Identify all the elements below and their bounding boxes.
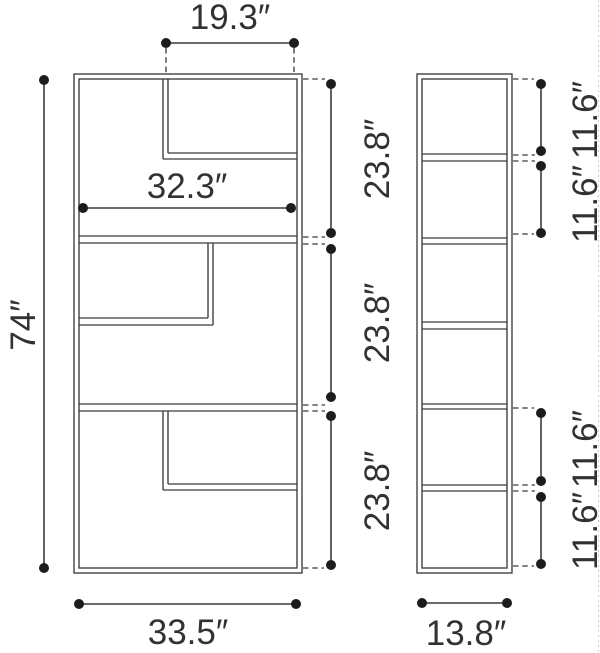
side-outer-edge: [417, 74, 512, 573]
dim-inner-shelf-width: 32.3″: [78, 167, 296, 213]
extension-dashes: [303, 79, 325, 568]
dim-endpoint-dot: [536, 492, 546, 502]
dim-endpoint-dot: [74, 599, 84, 609]
side-view: [417, 74, 512, 573]
dim-endpoint-dot: [39, 563, 49, 573]
dim-endpoint-dot: [326, 411, 336, 421]
dim-endpoint-dot: [289, 38, 299, 48]
dim-label-compartment-1: 11.6″: [566, 81, 600, 159]
dim-endpoint-dot: [326, 79, 336, 89]
dim-endpoint-dot: [536, 146, 546, 156]
front-view: [74, 74, 302, 573]
dim-endpoint-dot: [536, 408, 546, 418]
front-top-compartment-divider: [163, 79, 297, 159]
dim-endpoint-dot: [536, 228, 546, 238]
dim-label-inner-shelf-width: 32.3″: [147, 167, 228, 206]
dim-depth: 13.8″: [417, 598, 512, 653]
dim-label-compartment-6: 11.6″: [566, 492, 600, 570]
extension-dashes: [166, 48, 294, 73]
dim-endpoint-dot: [78, 203, 88, 213]
dim-endpoint-dot: [326, 560, 336, 570]
dim-endpoint-dot: [417, 598, 427, 608]
front-bottom-compartment-divider: [163, 411, 297, 490]
extension-dashes: [513, 79, 535, 566]
dim-label-depth: 13.8″: [426, 614, 507, 653]
side-inner-edge: [422, 79, 507, 568]
dimension-drawing: 19.3″ 32.3″ 74″ 23.8″ 23.8″ 23.8″ 33.5″: [0, 0, 600, 653]
dim-label-top-opening-width: 19.3″: [190, 0, 271, 37]
dim-overall-height: 74″: [4, 75, 49, 573]
dim-endpoint-dot: [326, 244, 336, 254]
front-middle-compartment-divider: [79, 243, 213, 325]
dim-endpoint-dot: [536, 559, 546, 569]
dim-label-section-2: 23.8″: [358, 283, 397, 364]
dim-label-compartment-2: 11.6″: [566, 165, 600, 243]
dim-endpoint-dot: [291, 599, 301, 609]
dim-endpoint-dot: [536, 476, 546, 486]
dim-label-overall-width: 33.5″: [148, 613, 229, 652]
dim-label-compartment-5: 11.6″: [566, 410, 600, 488]
dim-endpoint-dot: [502, 598, 512, 608]
dim-section-heights: 23.8″ 23.8″ 23.8″: [303, 79, 397, 570]
dim-endpoint-dot: [161, 38, 171, 48]
dim-top-opening-width: 19.3″: [161, 0, 299, 73]
dim-endpoint-dot: [39, 75, 49, 85]
dim-endpoint-dot: [286, 203, 296, 213]
dim-compartment-heights: 11.6″ 11.6″ 11.6″ 11.6″: [513, 79, 600, 570]
dim-label-section-1: 23.8″: [358, 119, 397, 200]
dim-label-section-3: 23.8″: [358, 451, 397, 532]
dim-endpoint-dot: [536, 161, 546, 171]
side-shelves: [422, 154, 507, 491]
dim-endpoint-dot: [326, 392, 336, 402]
front-shelf-2: [79, 404, 297, 411]
front-shelf-1: [79, 236, 297, 243]
dim-endpoint-dot: [536, 79, 546, 89]
dim-overall-width: 33.5″: [74, 599, 301, 652]
dim-endpoint-dot: [326, 228, 336, 238]
dim-label-overall-height: 74″: [4, 299, 43, 350]
front-outer-edge: [74, 74, 302, 573]
